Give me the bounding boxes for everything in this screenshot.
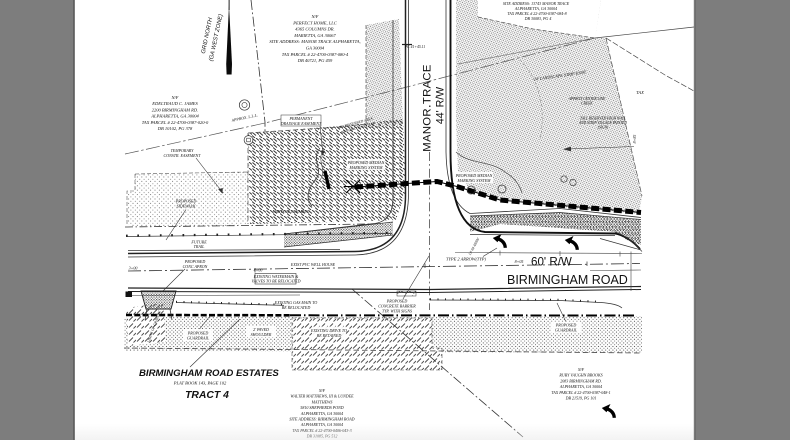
- svg-text:TAX PARCEL # 22-4700-0387-048-: TAX PARCEL # 22-4700-0387-048-1: [551, 390, 610, 395]
- svg-text:3+00: 3+00: [129, 266, 138, 271]
- svg-text:TAX PARCEL # 22-4700-0387-020-: TAX PARCEL # 22-4700-0387-020-0: [142, 120, 209, 125]
- svg-text:DRAINAGE EASEMENT: DRAINAGE EASEMENT: [280, 121, 322, 126]
- svg-text:CONSTR. EASEMENT: CONSTR. EASEMENT: [164, 153, 202, 158]
- svg-text:5810 SHEPHERDS POND: 5810 SHEPHERDS POND: [300, 405, 343, 410]
- svg-text:(SIGN): (SIGN): [598, 126, 609, 130]
- svg-text:N/F: N/F: [310, 14, 318, 19]
- svg-text:BE RELOCATED: BE RELOCATED: [282, 305, 311, 310]
- svg-text:SITE ADDRESS: BIRMINGHAM ROAD: SITE ADDRESS: BIRMINGHAM ROAD: [289, 417, 354, 422]
- svg-text:BE RETAINED: BE RETAINED: [317, 333, 342, 338]
- svg-text:PC 41+45.11: PC 41+45.11: [404, 45, 426, 49]
- svg-text:GA 30004: GA 30004: [306, 46, 325, 51]
- svg-text:8+05: 8+05: [515, 259, 524, 264]
- svg-text:RUBY VAUGHN BROOKS: RUBY VAUGHN BROOKS: [558, 373, 602, 378]
- svg-text:GUARDRAIL: GUARDRAIL: [187, 336, 210, 341]
- svg-text:APPROX CENTER LINE: APPROX CENTER LINE: [568, 97, 606, 101]
- svg-text:TYP. WITH SIGNS: TYP. WITH SIGNS: [382, 309, 412, 314]
- svg-text:CONC APRON: CONC APRON: [183, 264, 208, 269]
- svg-text:EXIST PVC WELL HOUSE: EXIST PVC WELL HOUSE: [290, 262, 336, 267]
- svg-text:MARKING SYSTEM: MARKING SYSTEM: [457, 178, 492, 183]
- svg-text:TAX: TAX: [636, 90, 644, 95]
- svg-text:60' R/W: 60' R/W: [531, 256, 572, 269]
- svg-text:BIRMINGHAM ROAD: BIRMINGHAM ROAD: [507, 273, 628, 287]
- svg-text:LIMITS OF CLEARING: LIMITS OF CLEARING: [272, 210, 310, 214]
- svg-text:EDELTRAUD C. JAMES: EDELTRAUD C. JAMES: [151, 101, 198, 106]
- svg-text:TRACT 4: TRACT 4: [185, 390, 229, 401]
- svg-text:SIDEWALK: SIDEWALK: [176, 204, 195, 209]
- svg-text:VALVES TO BE RELOCATED: VALVES TO BE RELOCATED: [252, 279, 301, 284]
- svg-text:2200 BIRMINGHAM RD.: 2200 BIRMINGHAM RD.: [152, 107, 199, 112]
- svg-text:TALL RESERVED HIGH WALL: TALL RESERVED HIGH WALL: [580, 117, 626, 121]
- svg-text:MATTHEWS: MATTHEWS: [311, 399, 333, 404]
- svg-text:BIRMINGHAM ROAD ESTATES: BIRMINGHAM ROAD ESTATES: [139, 368, 279, 379]
- svg-text:TAX PARCEL # 22-4700-0387-080-: TAX PARCEL # 22-4700-0387-080-4: [282, 52, 349, 57]
- svg-text:TRAIL: TRAIL: [194, 244, 205, 249]
- svg-text:TYPE 2 ARROW(TYP): TYPE 2 ARROW(TYP): [446, 257, 486, 262]
- svg-text:N/F: N/F: [170, 95, 178, 100]
- svg-text:4+00: 4+00: [254, 268, 263, 273]
- svg-text:N/F: N/F: [318, 388, 326, 393]
- svg-text:MANOR․TRACE: MANOR․TRACE: [422, 64, 434, 152]
- svg-text:GUARDRAIL: GUARDRAIL: [555, 328, 578, 333]
- svg-text:44' R/W: 44' R/W: [435, 87, 447, 124]
- svg-text:SHOULDER: SHOULDER: [251, 332, 272, 337]
- svg-text:CREEK: CREEK: [581, 102, 593, 106]
- svg-text:8+85: 8+85: [632, 135, 637, 144]
- svg-text:2083 BIRMINGHAM RD.: 2083 BIRMINGHAM RD.: [560, 378, 601, 383]
- svg-text:AND STRIP VILLAGE PAINTED: AND STRIP VILLAGE PAINTED: [578, 121, 627, 125]
- svg-text:4365 COLUMNS DR.: 4365 COLUMNS DR.: [295, 27, 334, 32]
- svg-text:MARKING SYSTEM: MARKING SYSTEM: [349, 165, 384, 170]
- svg-text:N/F: N/F: [577, 367, 585, 372]
